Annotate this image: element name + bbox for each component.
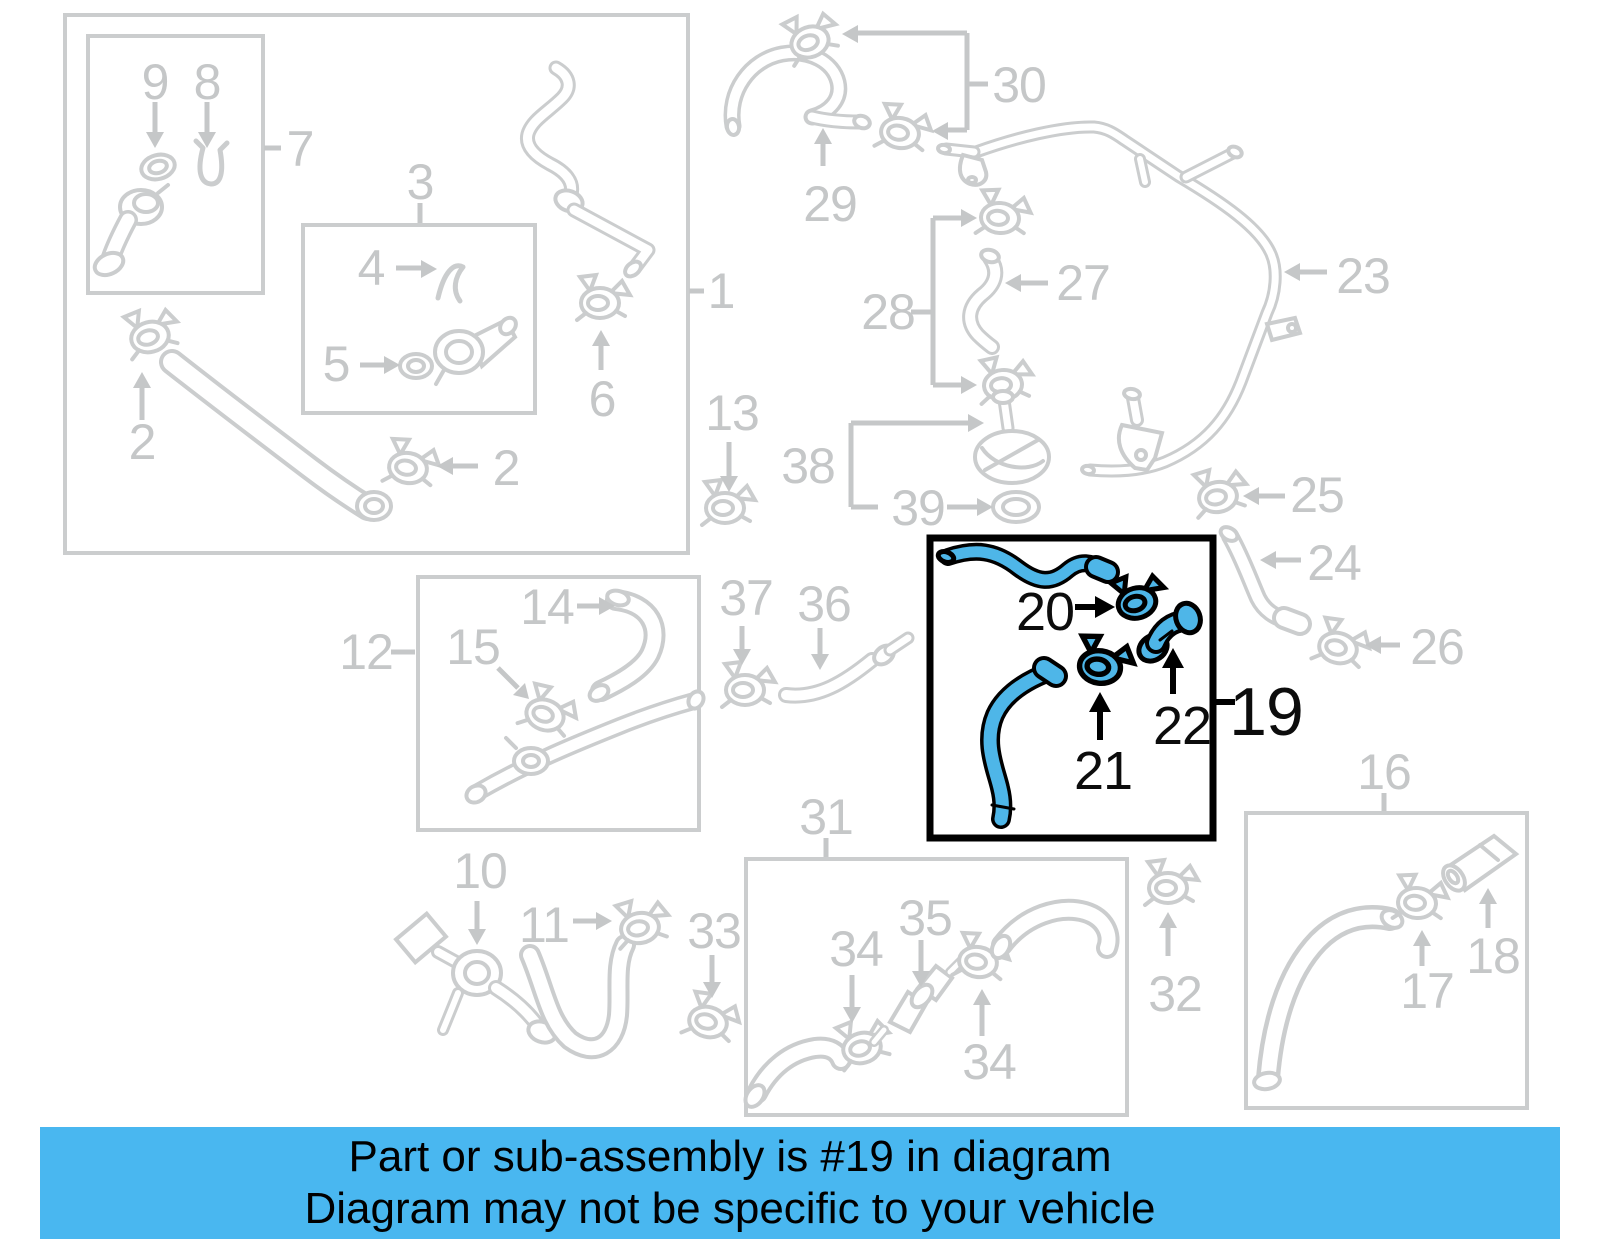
part-38-thermostat bbox=[975, 391, 1049, 483]
callout-31: 31 bbox=[799, 792, 853, 842]
callout-17: 17 bbox=[1400, 966, 1454, 1016]
callout-4: 4 bbox=[358, 243, 385, 293]
part-18-fitting bbox=[1439, 836, 1516, 895]
part-2-hose bbox=[172, 362, 391, 520]
callout-2-a: 2 bbox=[129, 417, 156, 467]
part-23-pipe bbox=[937, 127, 1300, 475]
part-3-housing bbox=[435, 315, 519, 384]
part-36-hose bbox=[786, 638, 908, 696]
callout-36: 36 bbox=[797, 579, 851, 629]
part-33-clamp bbox=[681, 989, 744, 1046]
callout-37: 37 bbox=[719, 573, 773, 623]
banner-line-1: Part or sub-assembly is #19 in diagram bbox=[349, 1131, 1112, 1183]
callout-5: 5 bbox=[323, 339, 350, 389]
callout-24: 24 bbox=[1307, 538, 1361, 588]
callout-33: 33 bbox=[687, 906, 741, 956]
callout-28: 28 bbox=[861, 287, 915, 337]
callout-2-b: 2 bbox=[493, 443, 520, 493]
callout-22: 22 bbox=[1153, 699, 1211, 753]
highlight-banner: Part or sub-assembly is #19 in diagram D… bbox=[40, 1127, 1560, 1239]
part-24-hose bbox=[1218, 524, 1300, 624]
callout-18: 18 bbox=[1466, 931, 1520, 981]
callout-34-a: 34 bbox=[829, 924, 883, 974]
part-2-clamp-b bbox=[382, 436, 442, 490]
callout-12: 12 bbox=[339, 627, 393, 677]
part-1-pipe bbox=[527, 68, 648, 279]
callout-27: 27 bbox=[1056, 258, 1110, 308]
part-26-clamp bbox=[1311, 615, 1374, 672]
part-29-hose bbox=[726, 53, 872, 136]
callout-3: 3 bbox=[407, 157, 434, 207]
part-6-clamp bbox=[577, 275, 630, 320]
callout-21: 21 bbox=[1074, 744, 1132, 798]
callout-13: 13 bbox=[705, 388, 759, 438]
part-8-clip bbox=[196, 141, 227, 184]
part-30-clamp-b bbox=[874, 101, 934, 155]
callout-16: 16 bbox=[1357, 747, 1411, 797]
callout-10: 10 bbox=[453, 846, 507, 896]
callout-26: 26 bbox=[1410, 622, 1464, 672]
callout-19: 19 bbox=[1229, 678, 1303, 746]
part-25-clamp bbox=[1190, 464, 1250, 518]
part-5-oring bbox=[400, 354, 432, 378]
part-27-hose bbox=[970, 248, 1000, 347]
callout-6: 6 bbox=[589, 374, 616, 424]
part-32-clamp bbox=[1145, 860, 1198, 905]
part-15-clamp bbox=[518, 681, 583, 741]
part-31-hose-right bbox=[988, 910, 1108, 962]
callout-32: 32 bbox=[1148, 969, 1202, 1019]
callout-9: 9 bbox=[142, 57, 169, 107]
callout-15: 15 bbox=[446, 622, 500, 672]
callout-29: 29 bbox=[803, 179, 857, 229]
callout-25: 25 bbox=[1290, 470, 1344, 520]
callout-7: 7 bbox=[287, 124, 314, 174]
part-16-hose bbox=[1253, 907, 1406, 1092]
callout-23: 23 bbox=[1336, 251, 1390, 301]
part-37-clamp bbox=[722, 662, 775, 707]
part-7-thermostat bbox=[91, 185, 168, 279]
part-12-pipe bbox=[463, 689, 706, 806]
part-31-hose-left bbox=[742, 1048, 841, 1111]
callout-38: 38 bbox=[781, 441, 835, 491]
part-28-clamp-a bbox=[976, 188, 1033, 237]
callout-39: 39 bbox=[891, 483, 945, 533]
part-4-clip bbox=[438, 266, 463, 301]
banner-line-2: Diagram may not be specific to your vehi… bbox=[304, 1183, 1155, 1235]
callout-30: 30 bbox=[992, 60, 1046, 110]
part-9-oring bbox=[138, 151, 177, 183]
callout-1: 1 bbox=[708, 266, 735, 316]
part-39-oring bbox=[993, 492, 1039, 522]
callout-35: 35 bbox=[898, 893, 952, 943]
callout-34-b: 34 bbox=[962, 1037, 1016, 1087]
callout-20: 20 bbox=[1016, 585, 1074, 639]
callout-14: 14 bbox=[520, 582, 574, 632]
callout-8: 8 bbox=[194, 57, 221, 107]
callout-11: 11 bbox=[519, 900, 569, 950]
parts-diagram-page: 9 8 7 3 4 5 2 2 6 1 13 38 39 29 30 28 27… bbox=[0, 0, 1600, 1249]
